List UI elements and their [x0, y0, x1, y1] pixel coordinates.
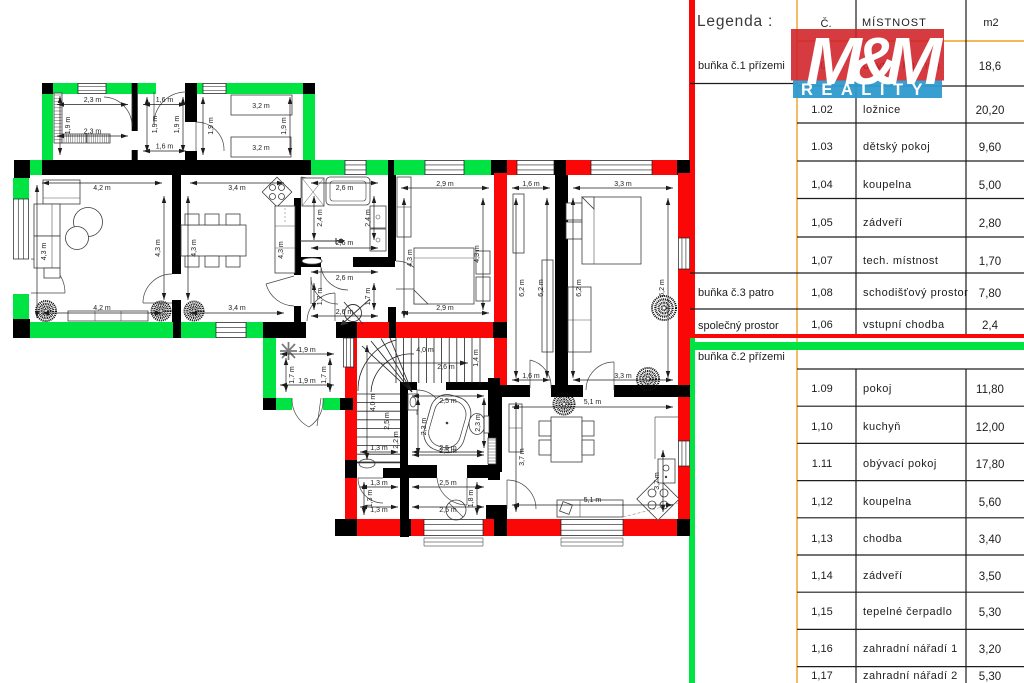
- svg-text:4,2 m: 4,2 m: [93, 305, 111, 312]
- svg-text:2,5 m: 2,5 m: [439, 398, 457, 405]
- svg-text:3,7 m: 3,7 m: [519, 448, 526, 466]
- svg-text:2,9 m: 2,9 m: [436, 181, 454, 188]
- svg-text:koupelna: koupelna: [863, 496, 912, 508]
- svg-text:buňka č.1 přízemi: buňka č.1 přízemi: [698, 60, 785, 72]
- svg-text:4,0 m: 4,0 m: [416, 347, 434, 354]
- svg-text:1,9 m: 1,9 m: [298, 347, 316, 354]
- svg-text:7,80: 7,80: [979, 288, 1001, 300]
- svg-text:3,40: 3,40: [979, 534, 1001, 546]
- svg-text:3,50: 3,50: [979, 571, 1001, 583]
- svg-text:3,2 m: 3,2 m: [252, 145, 270, 152]
- svg-text:11,80: 11,80: [976, 384, 1004, 396]
- svg-text:dětský pokoj: dětský pokoj: [863, 141, 930, 153]
- svg-text:6,2 m: 6,2 m: [659, 279, 666, 297]
- svg-text:2,9 m: 2,9 m: [436, 305, 454, 312]
- svg-text:chodba: chodba: [863, 533, 902, 545]
- svg-text:5,30: 5,30: [979, 607, 1001, 619]
- svg-text:4,3 m: 4,3 m: [155, 239, 162, 257]
- svg-text:12,00: 12,00: [976, 422, 1005, 434]
- svg-text:m2: m2: [983, 17, 998, 29]
- svg-text:4,3 m: 4,3 m: [474, 245, 481, 263]
- svg-text:1,6 m: 1,6 m: [522, 373, 540, 380]
- svg-text:1,9 m: 1,9 m: [174, 116, 181, 134]
- svg-text:2,5 m: 2,5 m: [439, 445, 457, 452]
- svg-text:6,2 m: 6,2 m: [576, 279, 583, 297]
- svg-text:1,3 m: 1,3 m: [370, 480, 388, 487]
- svg-text:1,6 m: 1,6 m: [156, 144, 174, 151]
- svg-text:1,10: 1,10: [811, 421, 832, 433]
- svg-text:2,6 m: 2,6 m: [336, 275, 354, 282]
- svg-text:1,06: 1,06: [811, 319, 832, 331]
- svg-text:2,6 m: 2,6 m: [336, 309, 354, 316]
- svg-text:zádveří: zádveří: [863, 570, 903, 582]
- svg-text:3,3 m: 3,3 m: [614, 373, 632, 380]
- svg-text:5,1 m: 5,1 m: [584, 399, 602, 406]
- svg-text:2,3 m: 2,3 m: [84, 97, 102, 104]
- svg-text:1,3 m: 1,3 m: [367, 490, 374, 508]
- svg-text:1,9 m: 1,9 m: [152, 116, 159, 134]
- svg-text:4,3 m: 4,3 m: [407, 249, 414, 267]
- svg-text:REALITY: REALITY: [801, 81, 931, 99]
- svg-text:3,4 m: 3,4 m: [228, 305, 246, 312]
- svg-text:1,15: 1,15: [811, 606, 832, 618]
- svg-text:2,2 m: 2,2 m: [393, 431, 400, 449]
- svg-text:1,4 m: 1,4 m: [473, 349, 480, 367]
- svg-text:3,20: 3,20: [979, 644, 1001, 656]
- svg-text:20,20: 20,20: [976, 105, 1005, 117]
- svg-text:4,3 m: 4,3 m: [278, 241, 285, 259]
- svg-text:1,05: 1,05: [811, 217, 832, 229]
- svg-text:1.03: 1.03: [811, 141, 832, 153]
- svg-text:18,6: 18,6: [979, 61, 1001, 73]
- svg-text:2,80: 2,80: [979, 218, 1001, 230]
- svg-text:společný prostor: společný prostor: [698, 320, 779, 332]
- svg-text:3,2 m: 3,2 m: [252, 103, 270, 110]
- svg-text:buňka č.2 přízemi: buňka č.2 přízemi: [698, 351, 785, 363]
- svg-text:2,3 m: 2,3 m: [84, 129, 102, 136]
- svg-text:4,2 m: 4,2 m: [93, 185, 111, 192]
- svg-text:4,0 m: 4,0 m: [370, 394, 377, 412]
- svg-text:ložnice: ložnice: [863, 104, 901, 116]
- svg-text:2,5 m: 2,5 m: [384, 412, 391, 430]
- svg-text:1,6 m: 1,6 m: [156, 97, 174, 104]
- svg-text:9,60: 9,60: [979, 142, 1001, 154]
- svg-text:1,9 m: 1,9 m: [208, 117, 215, 135]
- svg-text:1,6 m: 1,6 m: [522, 181, 540, 188]
- svg-text:4,3 m: 4,3 m: [191, 239, 198, 257]
- svg-text:1,17: 1,17: [811, 670, 832, 682]
- svg-text:2,4 m: 2,4 m: [365, 209, 372, 227]
- svg-text:1,70: 1,70: [979, 256, 1001, 268]
- svg-text:1,7 m: 1,7 m: [365, 288, 372, 306]
- svg-text:1,13: 1,13: [811, 533, 832, 545]
- svg-text:1,7 m: 1,7 m: [317, 288, 324, 306]
- svg-text:1,04: 1,04: [811, 179, 832, 191]
- svg-text:2,3 m: 2,3 m: [475, 414, 482, 432]
- svg-text:6,2 m: 6,2 m: [519, 279, 526, 297]
- svg-text:1,9 m: 1,9 m: [298, 378, 316, 385]
- svg-text:1.09: 1.09: [811, 383, 832, 395]
- svg-text:kuchyň: kuchyň: [863, 421, 901, 433]
- svg-text:2,4 m: 2,4 m: [317, 209, 324, 227]
- svg-text:1,3 m: 1,3 m: [370, 507, 388, 514]
- svg-text:5,60: 5,60: [979, 497, 1001, 509]
- svg-text:koupelna: koupelna: [863, 179, 912, 191]
- svg-text:2,5 m: 2,5 m: [439, 507, 457, 514]
- svg-text:1,7 m: 1,7 m: [321, 366, 328, 384]
- svg-text:17,80: 17,80: [976, 459, 1005, 471]
- svg-text:1,8 m: 1,8 m: [468, 490, 475, 508]
- svg-text:1,9 m: 1,9 m: [281, 117, 288, 135]
- svg-text:3,3 m: 3,3 m: [614, 181, 632, 188]
- svg-text:5,1 m: 5,1 m: [584, 497, 602, 504]
- svg-text:buňka č.3 patro: buňka č.3 patro: [698, 287, 774, 299]
- svg-text:zahradní nářadí 2: zahradní nářadí 2: [863, 670, 958, 682]
- svg-text:zahradní nářadí 1: zahradní nářadí 1: [863, 643, 958, 655]
- svg-text:1.11: 1.11: [812, 458, 833, 470]
- svg-text:6,2 m: 6,2 m: [538, 279, 545, 297]
- svg-text:2,6 m: 2,6 m: [336, 185, 354, 192]
- svg-text:1,7 m: 1,7 m: [289, 366, 296, 384]
- svg-text:2,4: 2,4: [982, 320, 999, 332]
- svg-text:Legenda :: Legenda :: [697, 13, 773, 30]
- svg-text:1,3 m: 1,3 m: [370, 445, 388, 452]
- svg-text:4,3 m: 4,3 m: [41, 243, 48, 261]
- svg-text:3,4 m: 3,4 m: [228, 185, 246, 192]
- svg-text:2,3 m: 2,3 m: [421, 418, 428, 436]
- svg-text:2,6 m: 2,6 m: [336, 240, 354, 247]
- svg-text:5,30: 5,30: [979, 671, 1001, 683]
- svg-text:tech. místnost: tech. místnost: [863, 255, 938, 267]
- svg-text:schodišťový prostor: schodišťový prostor: [863, 287, 968, 299]
- svg-text:vstupní chodba: vstupní chodba: [863, 319, 945, 331]
- svg-text:1,12: 1,12: [811, 496, 832, 508]
- svg-text:2,6 m: 2,6 m: [437, 364, 455, 371]
- svg-text:1.02: 1.02: [811, 104, 832, 116]
- svg-text:5,00: 5,00: [979, 180, 1001, 192]
- svg-text:1,9 m: 1,9 m: [65, 117, 72, 135]
- svg-text:obývací pokoj: obývací pokoj: [863, 458, 937, 470]
- svg-text:tepelné čerpadlo: tepelné čerpadlo: [863, 606, 952, 618]
- svg-text:1,07: 1,07: [811, 255, 832, 267]
- svg-text:1,16: 1,16: [811, 643, 832, 655]
- svg-text:1,08: 1,08: [811, 287, 832, 299]
- svg-text:3,7 m: 3,7 m: [654, 472, 661, 490]
- svg-text:1,14: 1,14: [811, 570, 832, 582]
- svg-text:pokoj: pokoj: [863, 383, 892, 395]
- svg-text:zádveří: zádveří: [863, 217, 903, 229]
- svg-text:2,5 m: 2,5 m: [439, 480, 457, 487]
